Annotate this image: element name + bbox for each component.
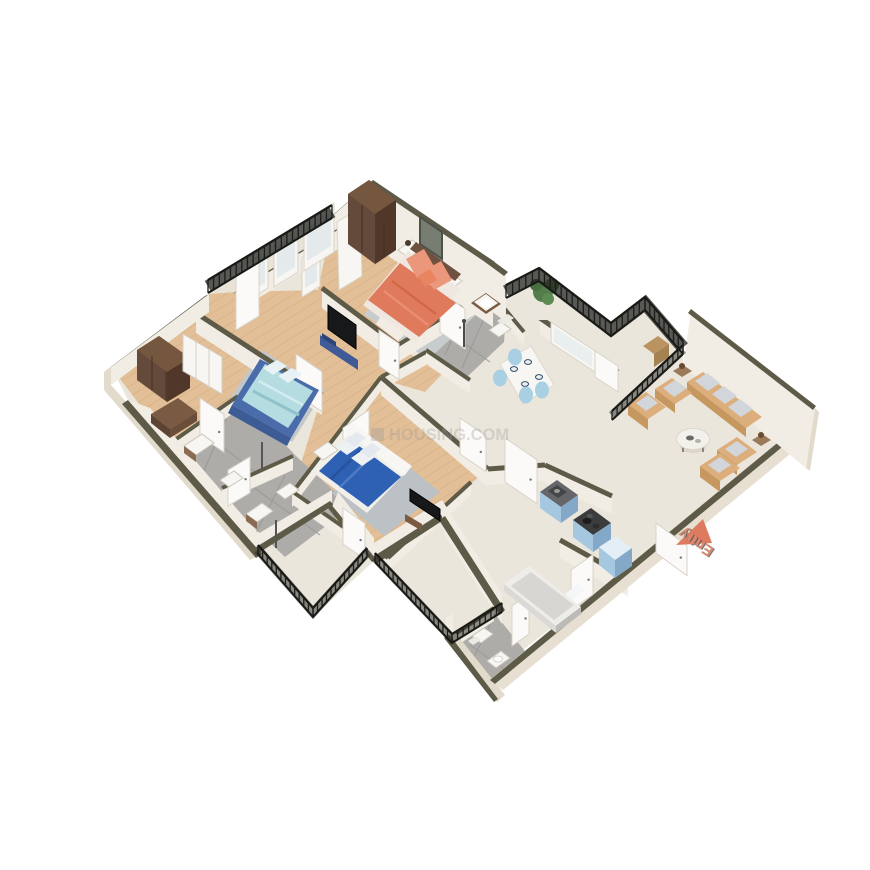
svg-text:HOUSING.COM: HOUSING.COM <box>389 426 509 444</box>
